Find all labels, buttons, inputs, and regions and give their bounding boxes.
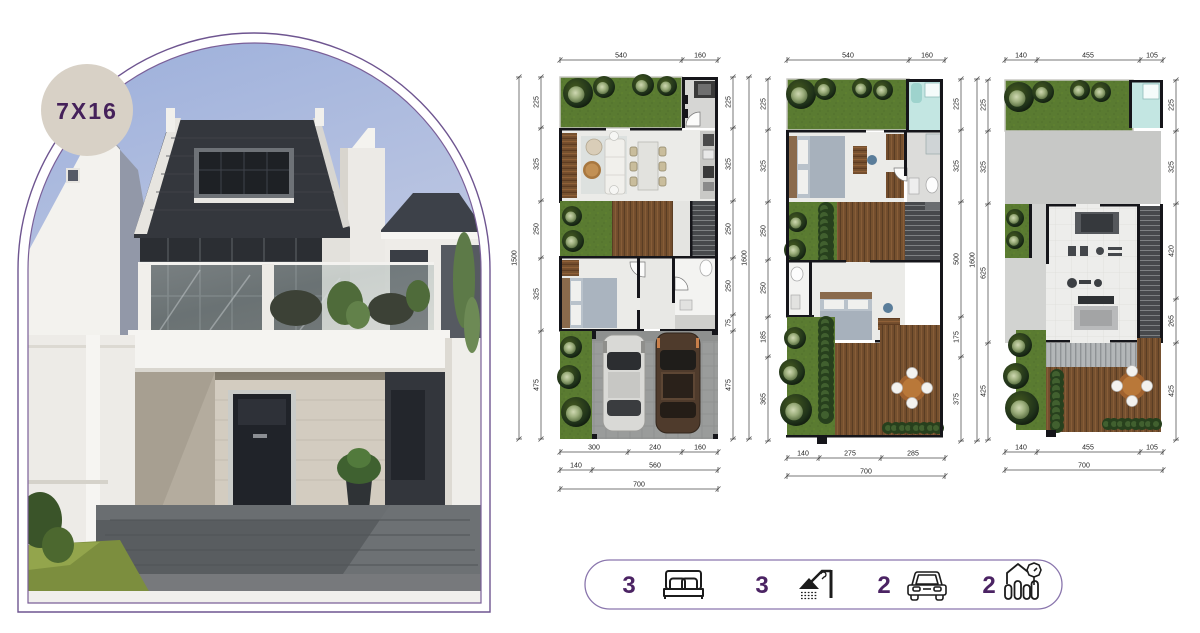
svg-text:250: 250 [726, 223, 733, 235]
svg-text:365: 365 [761, 393, 768, 405]
svg-text:140: 140 [797, 451, 809, 458]
svg-text:2: 2 [982, 572, 995, 599]
svg-text:160: 160 [921, 53, 933, 60]
svg-text:700: 700 [860, 469, 872, 476]
svg-text:285: 285 [907, 451, 919, 458]
svg-text:325: 325 [981, 161, 988, 173]
svg-text:250: 250 [726, 280, 733, 292]
svg-text:250: 250 [761, 282, 768, 294]
svg-text:375: 375 [954, 393, 961, 405]
svg-text:225: 225 [954, 98, 961, 110]
svg-text:425: 425 [981, 385, 988, 397]
svg-text:3: 3 [622, 572, 635, 599]
svg-text:225: 225 [761, 98, 768, 110]
svg-text:475: 475 [534, 379, 541, 391]
svg-text:560: 560 [649, 463, 661, 470]
svg-text:105: 105 [1146, 53, 1158, 60]
svg-text:250: 250 [534, 223, 541, 235]
svg-text:140: 140 [570, 463, 582, 470]
svg-text:275: 275 [844, 451, 856, 458]
svg-text:250: 250 [761, 225, 768, 237]
svg-text:1600: 1600 [742, 250, 749, 266]
svg-text:3: 3 [755, 572, 768, 599]
svg-text:500: 500 [954, 253, 961, 265]
svg-text:325: 325 [726, 158, 733, 170]
svg-text:7X16: 7X16 [56, 98, 118, 124]
svg-text:475: 475 [726, 379, 733, 391]
svg-text:160: 160 [694, 53, 706, 60]
svg-text:265: 265 [1169, 315, 1176, 327]
svg-text:140: 140 [1015, 445, 1027, 452]
svg-text:700: 700 [633, 482, 645, 489]
svg-text:225: 225 [726, 96, 733, 108]
svg-text:455: 455 [1082, 445, 1094, 452]
svg-text:625: 625 [981, 267, 988, 279]
svg-text:420: 420 [1169, 245, 1176, 257]
svg-text:325: 325 [534, 158, 541, 170]
svg-text:325: 325 [1169, 161, 1176, 173]
svg-text:325: 325 [534, 288, 541, 300]
svg-text:2: 2 [877, 572, 890, 599]
svg-text:1600: 1600 [970, 252, 977, 268]
svg-text:425: 425 [1169, 385, 1176, 397]
svg-text:225: 225 [534, 96, 541, 108]
svg-text:185: 185 [761, 331, 768, 343]
svg-text:75: 75 [726, 319, 733, 327]
svg-text:455: 455 [1082, 53, 1094, 60]
svg-text:300: 300 [588, 445, 600, 452]
svg-text:325: 325 [761, 160, 768, 172]
svg-text:225: 225 [981, 99, 988, 111]
svg-text:225: 225 [1169, 99, 1176, 111]
svg-text:140: 140 [1015, 53, 1027, 60]
svg-text:540: 540 [842, 53, 854, 60]
svg-text:175: 175 [954, 331, 961, 343]
svg-text:1500: 1500 [512, 250, 519, 266]
svg-text:325: 325 [954, 160, 961, 172]
svg-text:240: 240 [649, 445, 661, 452]
svg-text:105: 105 [1146, 445, 1158, 452]
svg-text:540: 540 [615, 53, 627, 60]
svg-text:160: 160 [694, 445, 706, 452]
svg-text:700: 700 [1078, 463, 1090, 470]
